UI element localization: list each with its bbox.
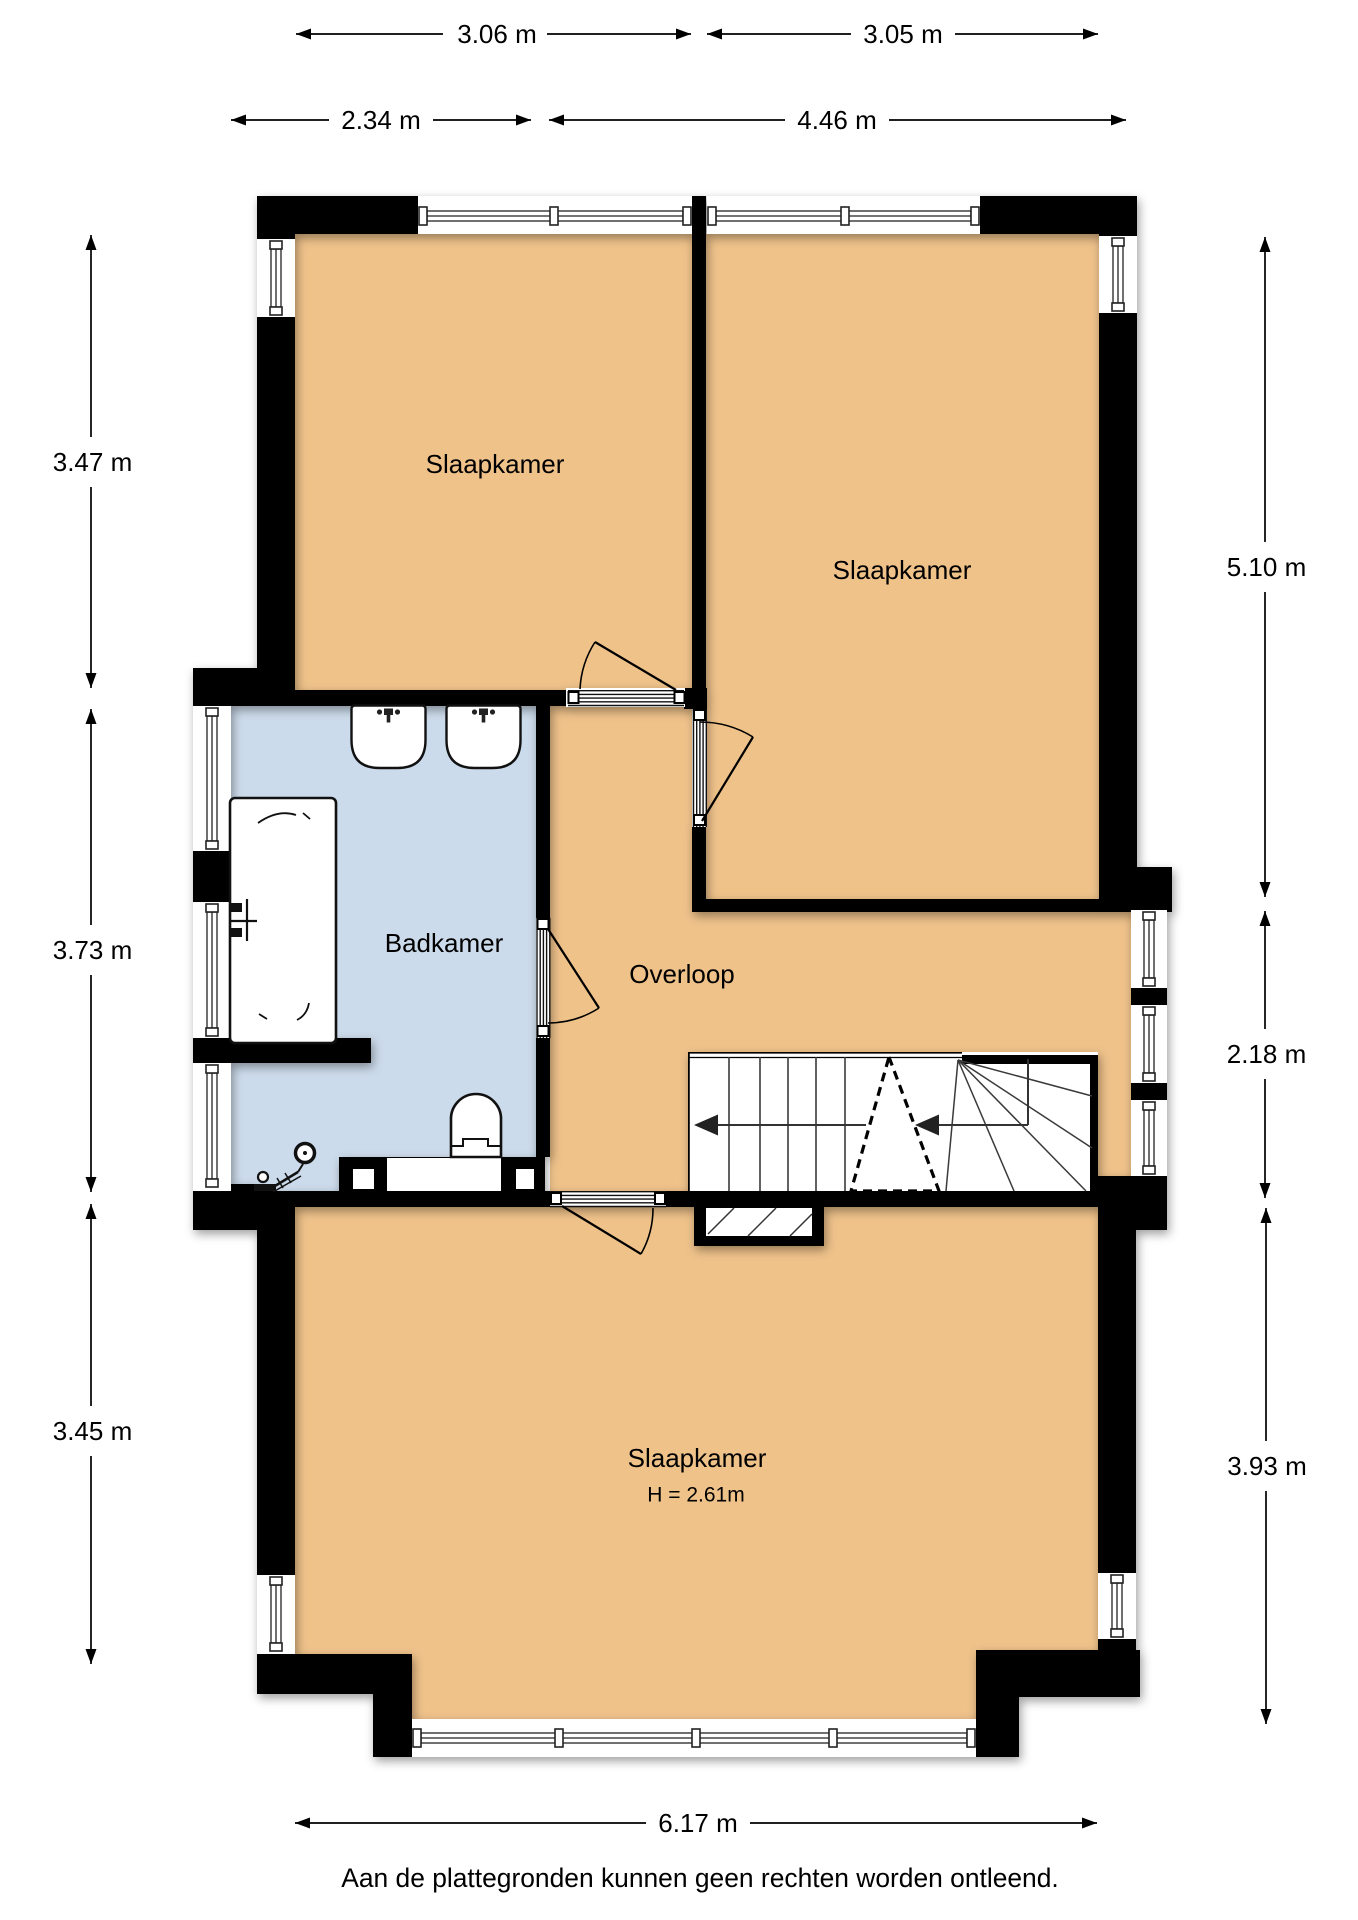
- svg-text:3.93 m: 3.93 m: [1227, 1451, 1307, 1481]
- svg-text:5.10 m: 5.10 m: [1227, 552, 1307, 582]
- svg-text:Slaapkamer: Slaapkamer: [833, 555, 972, 585]
- svg-text:Slaapkamer: Slaapkamer: [628, 1443, 767, 1473]
- svg-text:Overloop: Overloop: [629, 959, 735, 989]
- svg-text:3.73 m: 3.73 m: [53, 935, 133, 965]
- svg-text:3.45 m: 3.45 m: [53, 1416, 133, 1446]
- svg-text:Aan de plattegronden kunnen ge: Aan de plattegronden kunnen geen rechten…: [341, 1863, 1059, 1893]
- svg-text:3.05 m: 3.05 m: [863, 19, 943, 49]
- svg-text:Slaapkamer: Slaapkamer: [426, 449, 565, 479]
- svg-text:2.18 m: 2.18 m: [1227, 1039, 1307, 1069]
- svg-text:3.06 m: 3.06 m: [457, 19, 537, 49]
- svg-text:6.17 m: 6.17 m: [658, 1808, 738, 1838]
- svg-text:Badkamer: Badkamer: [385, 928, 504, 958]
- svg-text:4.46 m: 4.46 m: [797, 105, 877, 135]
- svg-text:3.47 m: 3.47 m: [53, 447, 133, 477]
- svg-text:2.34 m: 2.34 m: [341, 105, 421, 135]
- svg-text:H = 2.61m: H = 2.61m: [647, 1484, 744, 1507]
